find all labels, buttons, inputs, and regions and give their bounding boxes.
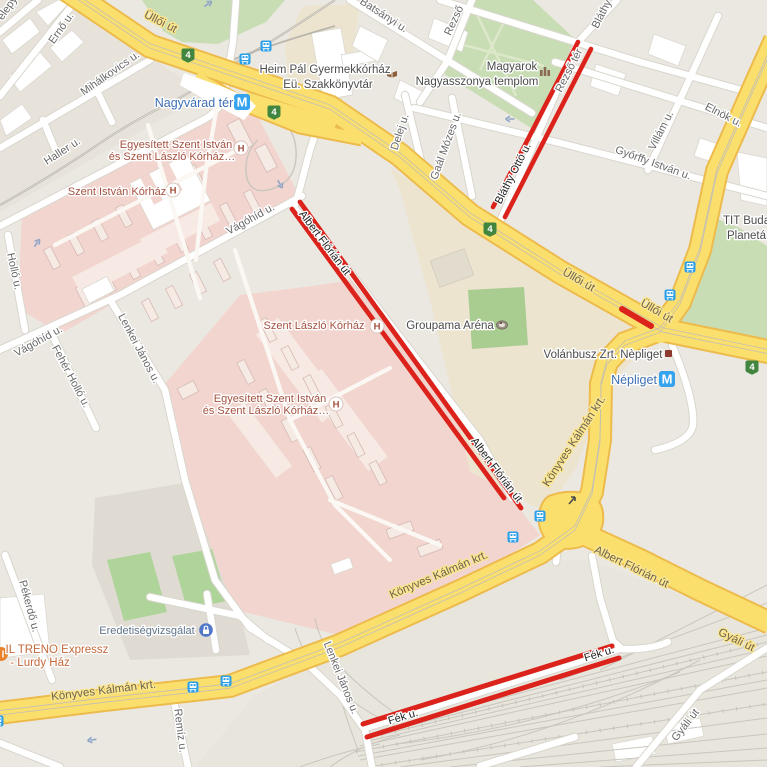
- svg-text:Volánbusz Zrt. Nèpliget: Volánbusz Zrt. Nèpliget: [544, 349, 664, 361]
- svg-text:Groupama Aréna: Groupama Aréna: [406, 320, 494, 332]
- svg-text:Nagyasszonya templom: Nagyasszonya templom: [416, 76, 539, 88]
- svg-text:TIT Buda: TIT Buda: [723, 215, 767, 227]
- svg-text:Planetá: Planetá: [727, 230, 767, 242]
- svg-text:M: M: [237, 95, 248, 110]
- svg-text:M: M: [662, 372, 673, 387]
- svg-text:Népliget: Népliget: [611, 373, 657, 387]
- svg-text:Szent László Kórház: Szent László Kórház: [264, 320, 365, 332]
- svg-text:Eredetiségvizsgálat: Eredetiségvizsgálat: [99, 625, 194, 637]
- svg-text:Egyesített Szent István: Egyesített Szent István: [120, 139, 233, 151]
- svg-text:Heim Pál Gyermekkórház: Heim Pál Gyermekkórház: [259, 64, 390, 76]
- svg-text:és Szent László Kórház…: és Szent László Kórház…: [109, 151, 236, 163]
- svg-text:Magyarok: Magyarok: [487, 61, 538, 73]
- svg-text:Egyesített Szent István: Egyesített Szent István: [214, 393, 327, 405]
- svg-text:- Lurdy Ház: - Lurdy Ház: [10, 657, 70, 669]
- svg-text:IL TRENO Expressz: IL TRENO Expressz: [6, 644, 109, 656]
- svg-text:Eü. Szakkönyvtár: Eü. Szakkönyvtár: [283, 79, 373, 91]
- svg-text:Szent István Kórház: Szent István Kórház: [68, 186, 166, 198]
- svg-text:és Szent László Kórház…: és Szent László Kórház…: [203, 405, 330, 417]
- svg-text:Nagyvárad tér: Nagyvárad tér: [155, 96, 234, 110]
